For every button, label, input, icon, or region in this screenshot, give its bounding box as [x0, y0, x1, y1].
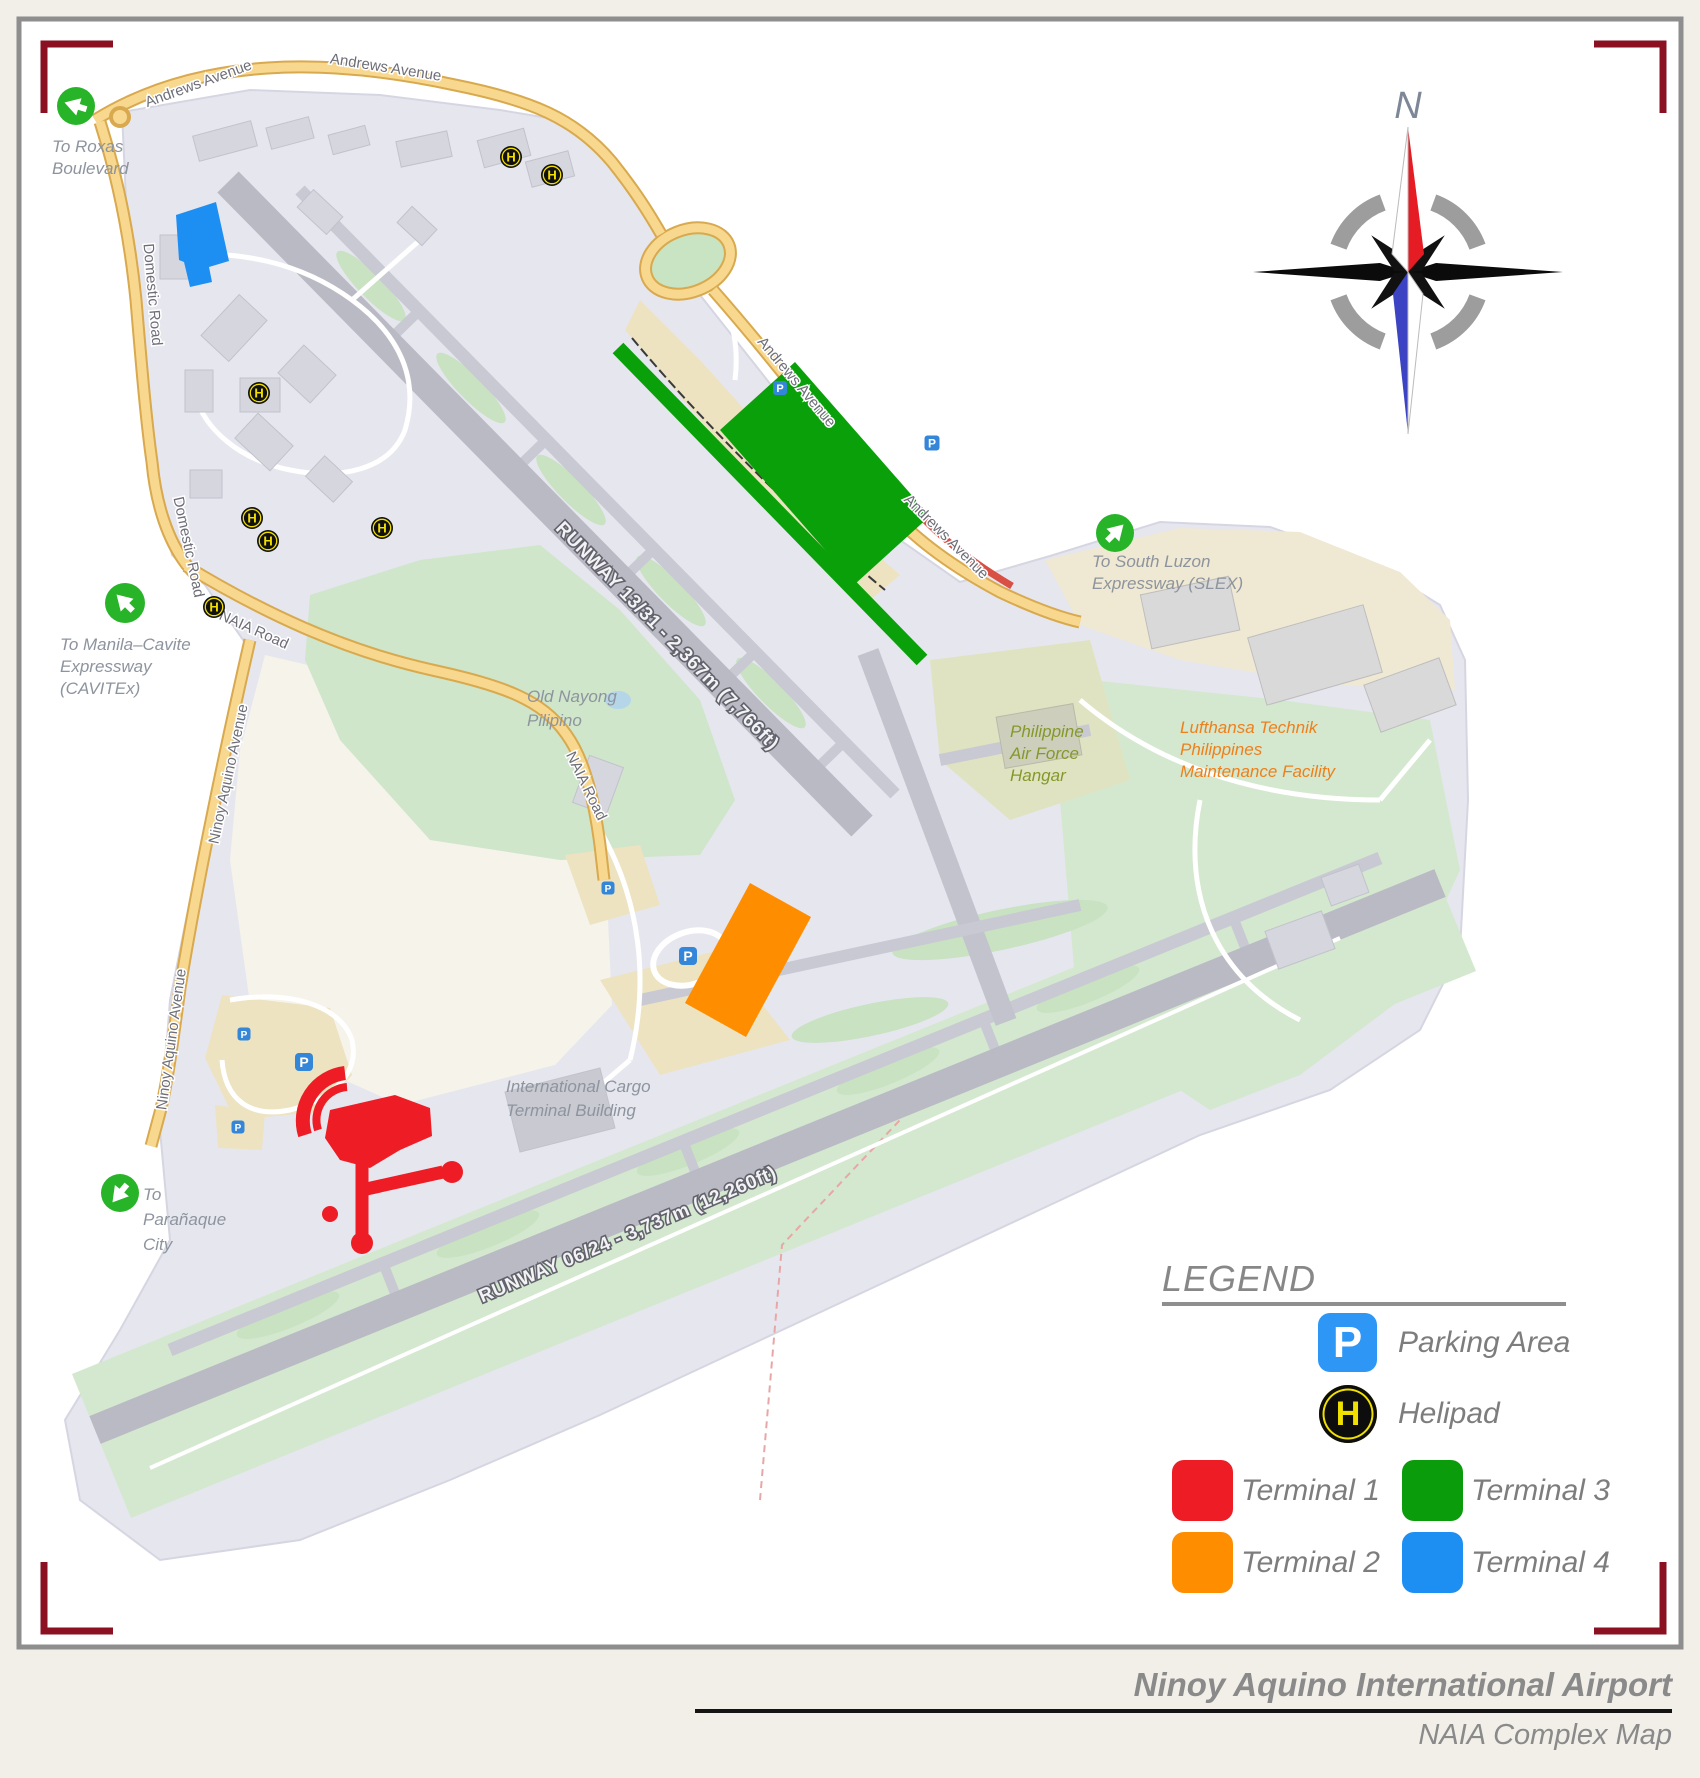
parking-icon: P: [602, 882, 615, 896]
footer: Ninoy Aquino International Airport NAIA …: [695, 1666, 1672, 1752]
exit-slex-label-2: Expressway (SLEX): [1092, 574, 1243, 593]
svg-text:H: H: [377, 521, 386, 536]
helipad-icon: H: [500, 146, 522, 168]
terminal-4-swatch: [1402, 1532, 1463, 1593]
cargo-label-2: Terminal Building: [506, 1101, 636, 1120]
svg-text:P: P: [299, 1054, 308, 1070]
helipad-icon: H: [541, 164, 563, 186]
exit-cavitex-label-2: Expressway: [60, 657, 153, 676]
map-title: Ninoy Aquino International Airport: [695, 1666, 1672, 1704]
parking-icon: P: [232, 1121, 245, 1135]
svg-text:P: P: [605, 884, 612, 895]
legend-title: LEGEND: [1162, 1258, 1566, 1300]
exit-roxas-label-2: Boulevard: [52, 159, 129, 178]
lufthansa-label-1: Lufthansa Technik: [1180, 718, 1319, 737]
terminal-1-swatch: [1172, 1460, 1233, 1521]
terminal-1-legend-label: Terminal 1: [1241, 1460, 1380, 1521]
parking-icon: P: [295, 1053, 313, 1071]
legend-rule: [1162, 1302, 1566, 1306]
exit-paranaque-label-3: City: [143, 1235, 174, 1254]
exit-paranaque-label-1: To: [143, 1185, 161, 1204]
terminal-3-legend-label: Terminal 3: [1471, 1460, 1610, 1521]
helipad-icon: H: [248, 382, 270, 404]
lufthansa-label-2: Philippines: [1180, 740, 1263, 759]
paf-hangar-label-3: Hangar: [1010, 766, 1067, 785]
paf-hangar-label-1: Philippine: [1010, 722, 1084, 741]
lufthansa-label-3: Maintenance Facility: [1180, 762, 1336, 781]
exit-roxas-label-1: To Roxas: [52, 137, 124, 156]
footer-rule: [695, 1709, 1672, 1713]
mini-roundabout: [111, 108, 129, 126]
terminal-3-swatch: [1402, 1460, 1463, 1521]
svg-text:H: H: [547, 168, 556, 183]
svg-text:H: H: [263, 534, 272, 549]
terminal-4-legend-label: Terminal 4: [1471, 1532, 1610, 1593]
svg-text:H: H: [209, 600, 218, 615]
parking-icon: P: [773, 381, 787, 395]
terminal-2-swatch: [1172, 1532, 1233, 1593]
parking-icon: P: [925, 436, 940, 451]
paf-hangar-label-2: Air Force: [1009, 744, 1079, 763]
exit-cavitex-label-3: (CAVITEx): [60, 679, 140, 698]
legend-helipad-label: Helipad: [1398, 1385, 1500, 1443]
parking-icon: P: [238, 1028, 251, 1042]
svg-text:H: H: [254, 386, 263, 401]
terminal-2-legend-label: Terminal 2: [1241, 1532, 1380, 1593]
helipad-legend-icon: H: [1319, 1385, 1377, 1443]
old-nayong-label-2: Pilipino: [527, 711, 582, 730]
svg-text:P: P: [683, 948, 692, 964]
parking-legend-icon: P: [1318, 1313, 1377, 1372]
helipad-icon: H: [257, 530, 279, 552]
svg-text:P: P: [776, 383, 783, 395]
map-subtitle: NAIA Complex Map: [695, 1719, 1672, 1752]
legend-parking-label: Parking Area: [1398, 1313, 1570, 1372]
parking-icon: P: [679, 947, 697, 965]
exit-paranaque-label-2: Parañaque: [143, 1210, 226, 1229]
helipad-icon: H: [371, 517, 393, 539]
cargo-label-1: International Cargo: [506, 1077, 651, 1096]
helipad-icon: H: [203, 596, 225, 618]
exit-cavitex-label-1: To Manila–Cavite: [60, 635, 191, 654]
svg-text:P: P: [928, 437, 936, 451]
svg-text:P: P: [235, 1123, 242, 1134]
helipad-icon: H: [241, 507, 263, 529]
compass-north-label: N: [1394, 85, 1422, 127]
old-nayong-label-1: Old Nayong: [527, 687, 617, 706]
svg-text:P: P: [241, 1030, 248, 1041]
svg-text:H: H: [506, 150, 515, 165]
svg-text:H: H: [247, 511, 256, 526]
exit-slex-label-1: To South Luzon: [1092, 552, 1210, 571]
